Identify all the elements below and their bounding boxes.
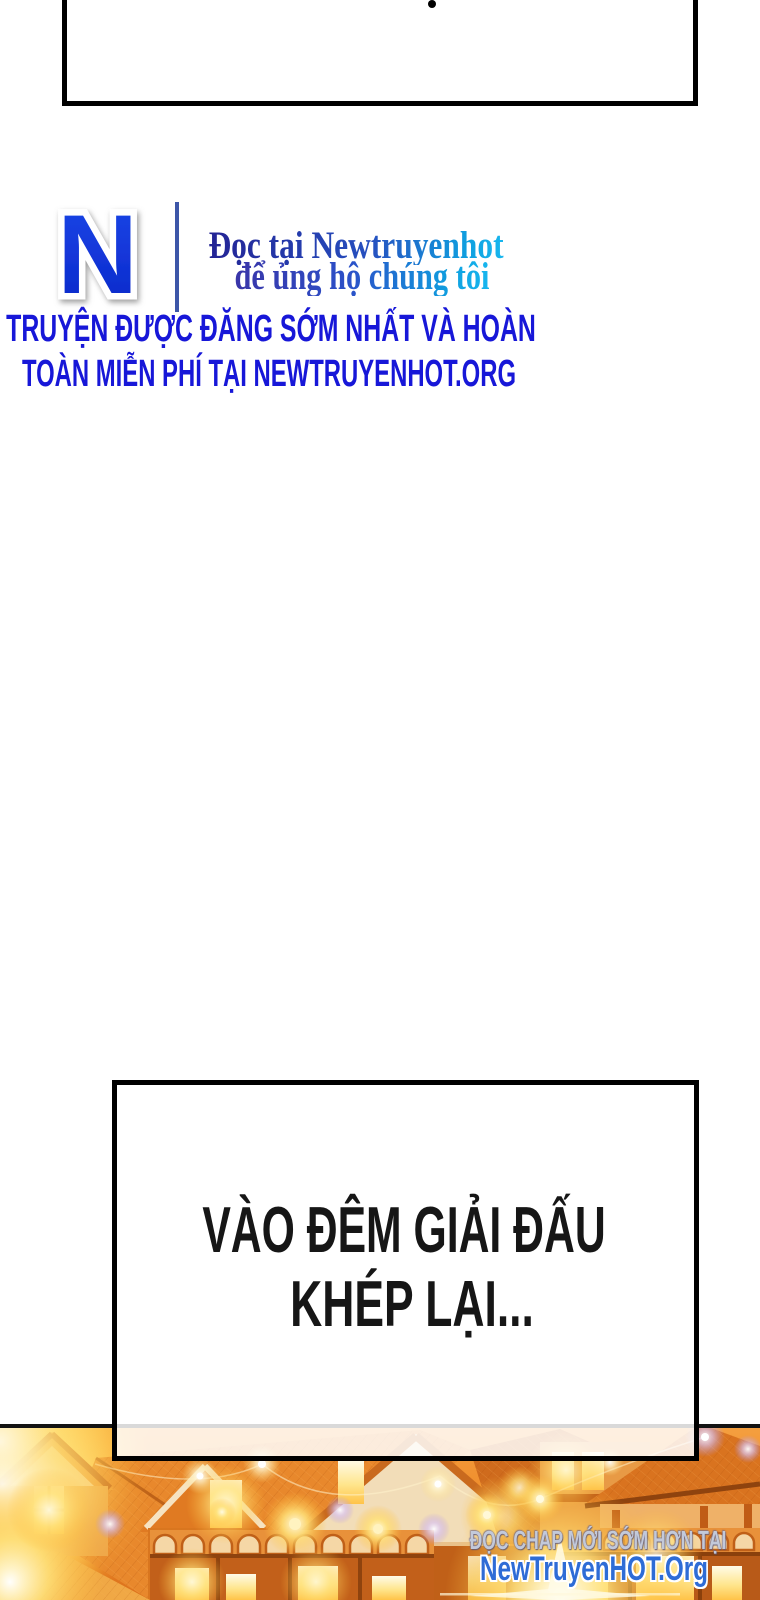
svg-text:N: N	[57, 198, 138, 316]
